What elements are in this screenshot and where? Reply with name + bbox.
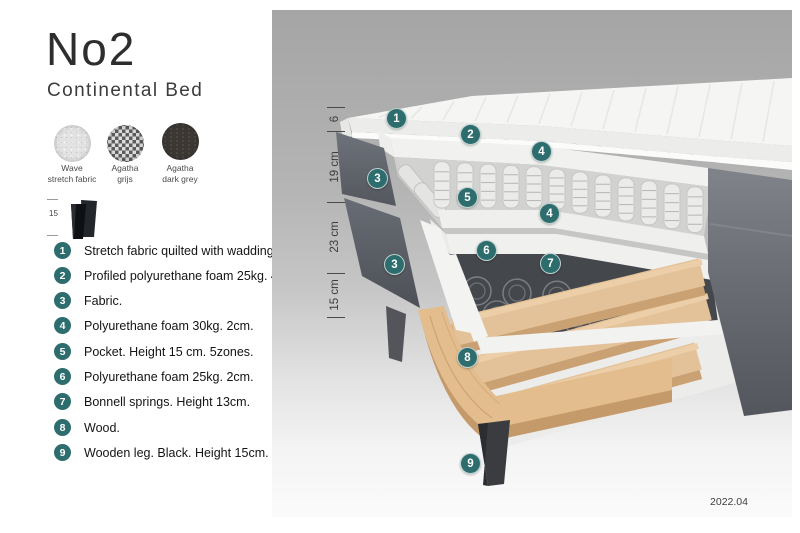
- dimension-tick: [327, 317, 345, 318]
- dimension-label-leg: 15 cm: [329, 279, 341, 310]
- legend-number-badge: 2: [54, 267, 71, 284]
- swatch-label: Agatha dark grey: [145, 163, 215, 184]
- legend-item: 8 Wood.: [54, 419, 120, 436]
- bed-cutaway-image: 6 19 cm 23 cm 15 cm 1 2 4 3 5 4 6 3 7 8 …: [272, 10, 792, 517]
- legend-text: Profiled polyurethane foam 25kg. 4cm.: [84, 269, 298, 283]
- dimension-tick: [327, 107, 345, 108]
- dimension-label-box: 23 cm: [329, 221, 341, 252]
- leg-thumbnail: 15: [45, 196, 117, 242]
- swatch-name-line: Agatha: [112, 163, 139, 173]
- version-caption: 2022.04: [700, 496, 748, 508]
- legend-item: 2 Profiled polyurethane foam 25kg. 4cm.: [54, 267, 298, 284]
- swatch-name-line: Agatha: [167, 163, 194, 173]
- legend-text: Polyurethane foam 25kg. 2cm.: [84, 370, 254, 384]
- legend-number-badge: 6: [54, 368, 71, 385]
- fabric-swatch-wave: [54, 125, 91, 162]
- legend-item: 9 Wooden leg. Black. Height 15cm.: [54, 444, 269, 461]
- legend-text: Pocket. Height 15 cm. 5zones.: [84, 345, 254, 359]
- legend-item: 1 Stretch fabric quilted with wadding.: [54, 242, 277, 259]
- diagram-marker-4-bottom: 4: [539, 203, 560, 224]
- legend-item: 6 Polyurethane foam 25kg. 2cm.: [54, 368, 254, 385]
- legend-number-badge: 1: [54, 242, 71, 259]
- legend-text: Stretch fabric quilted with wadding.: [84, 244, 277, 258]
- legend-text: Wood.: [84, 421, 120, 435]
- legend-text: Wooden leg. Black. Height 15cm.: [84, 446, 269, 460]
- diagram-marker-3-lower: 3: [384, 254, 405, 275]
- diagram-marker-9: 9: [460, 453, 481, 474]
- legend-number-badge: 7: [54, 393, 71, 410]
- legend-number-badge: 3: [54, 292, 71, 309]
- product-title: No2: [46, 22, 136, 76]
- leg-dimension-label: 15: [49, 209, 58, 218]
- legend-item: 4 Polyurethane foam 30kg. 2cm.: [54, 317, 254, 334]
- page: { "product": { "title": "No2", "subtitle…: [0, 0, 800, 533]
- swatch-name-line: grijs: [117, 174, 133, 184]
- diagram-marker-6: 6: [476, 240, 497, 261]
- legend-item: 7 Bonnell springs. Height 13cm.: [54, 393, 250, 410]
- swatch-name-line: dark grey: [162, 174, 197, 184]
- swatch-name-line: Wave: [61, 163, 82, 173]
- diagram-marker-1: 1: [386, 108, 407, 129]
- legend-item: 3 Fabric.: [54, 292, 122, 309]
- diagram-marker-3-upper: 3: [367, 168, 388, 189]
- bed-cutaway-render: [272, 10, 792, 517]
- dimension-tick: [327, 202, 345, 203]
- diagram-marker-8: 8: [457, 347, 478, 368]
- dimension-label-mattress: 19 cm: [329, 151, 341, 182]
- dimension-tick: [327, 131, 345, 132]
- legend-number-badge: 9: [54, 444, 71, 461]
- product-subtitle: Continental Bed: [47, 80, 203, 102]
- legend-number-badge: 8: [54, 419, 71, 436]
- diagram-marker-2: 2: [460, 124, 481, 145]
- fabric-swatch-agatha-grijs: [107, 125, 144, 162]
- leg-dim-tick: [47, 199, 58, 200]
- diagram-marker-4-top: 4: [531, 141, 552, 162]
- diagram-marker-7: 7: [540, 253, 561, 274]
- legend-item: 5 Pocket. Height 15 cm. 5zones.: [54, 343, 254, 360]
- dimension-tick: [327, 273, 345, 274]
- diagram-marker-5: 5: [457, 187, 478, 208]
- legend-number-badge: 4: [54, 317, 71, 334]
- legend-number-badge: 5: [54, 343, 71, 360]
- fabric-swatch-agatha-dark-grey: [162, 123, 199, 160]
- legend-text: Fabric.: [84, 294, 122, 308]
- leg-dim-tick: [47, 235, 58, 236]
- legend-text: Bonnell springs. Height 13cm.: [84, 395, 250, 409]
- dimension-label-topper: 6: [329, 116, 341, 122]
- legend-text: Polyurethane foam 30kg. 2cm.: [84, 319, 254, 333]
